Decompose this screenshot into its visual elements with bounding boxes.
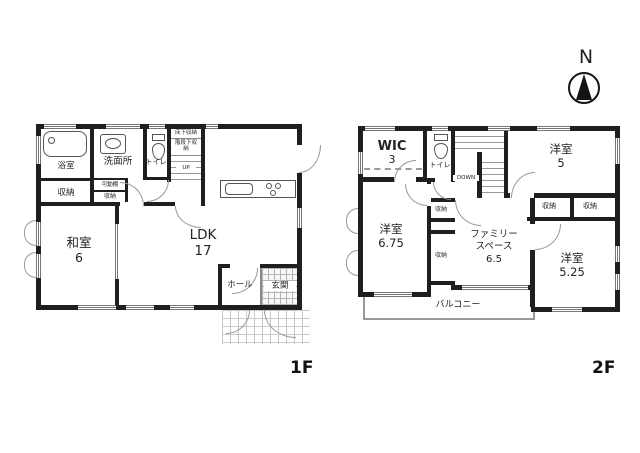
room-size-family-space: 6.5 bbox=[464, 254, 524, 266]
wall bbox=[36, 178, 94, 181]
window bbox=[44, 124, 76, 129]
room-size-bedroom-525: 5.25 bbox=[548, 266, 596, 280]
sliding-door-japanese-room bbox=[115, 224, 119, 279]
room-label-bathroom: 浴室 bbox=[47, 161, 85, 171]
room-label-entrance: 玄関 bbox=[264, 281, 296, 291]
label-stairs-down: DOWN bbox=[453, 175, 479, 181]
compass: N bbox=[560, 46, 604, 110]
toilet-tank-icon bbox=[152, 134, 165, 141]
casement-window-icon bbox=[346, 208, 358, 234]
room-label-bedroom-5: 洋室 bbox=[536, 143, 586, 157]
stove-burner-icon bbox=[266, 183, 272, 189]
room-label-japanese-room: 和室 bbox=[59, 236, 99, 251]
wall bbox=[167, 124, 171, 182]
casement-window-icon bbox=[346, 250, 358, 276]
window bbox=[297, 208, 302, 228]
room-size-wic: 3 bbox=[372, 154, 412, 167]
floorplan-page: { "compass": { "north": "N" }, "captions… bbox=[0, 0, 640, 453]
window bbox=[126, 305, 154, 310]
casement-window-icon bbox=[24, 220, 36, 246]
floor-plan-1f: 浴室 洗面所 トイレ 床下収納 階段下収納 UP 可動棚 収納 収納 和室 6 … bbox=[36, 124, 306, 354]
stove-burner-icon bbox=[275, 183, 281, 189]
casement-window-icon bbox=[24, 252, 36, 278]
window bbox=[432, 126, 448, 131]
wall bbox=[94, 178, 128, 180]
door-arc bbox=[147, 180, 169, 202]
toilet-tank-icon bbox=[434, 134, 448, 141]
washbasin-bowl-icon bbox=[105, 138, 121, 149]
staircase-down-upper bbox=[455, 131, 504, 152]
label-closet: 収納 bbox=[573, 202, 607, 210]
balcony-sliding-door bbox=[462, 285, 528, 290]
kitchen-back-door-arc bbox=[299, 145, 321, 173]
label-closet: 収納 bbox=[50, 188, 82, 198]
room-label-bedroom-525: 洋室 bbox=[548, 252, 596, 266]
label-understairs-storage: 階段下収納 bbox=[175, 140, 197, 153]
window bbox=[374, 292, 412, 297]
room-size-ldk: 17 bbox=[181, 244, 225, 260]
room-label-hall: ホール bbox=[224, 280, 256, 290]
door-arc bbox=[175, 206, 201, 228]
kitchen-sink-icon bbox=[225, 183, 253, 195]
window bbox=[365, 126, 395, 131]
wall bbox=[530, 198, 535, 307]
bathtub-drain-icon bbox=[48, 137, 55, 144]
stair-closet-divider bbox=[171, 138, 201, 139]
window bbox=[358, 152, 363, 174]
label-stairs-up: UP bbox=[176, 165, 196, 171]
room-label-toilet: トイレ bbox=[142, 158, 170, 166]
room-label-toilet: トイレ bbox=[424, 161, 456, 169]
wall bbox=[427, 218, 455, 222]
wall bbox=[423, 126, 427, 182]
door-arc bbox=[511, 172, 535, 198]
window bbox=[170, 305, 194, 310]
label-underfloor-storage: 床下収納 bbox=[172, 130, 200, 136]
window bbox=[552, 307, 582, 312]
window bbox=[206, 124, 218, 129]
floor-caption-1f: 1F bbox=[290, 358, 313, 378]
door-arc bbox=[405, 184, 427, 206]
room-label-bedroom-675: 洋室 bbox=[368, 223, 414, 237]
window bbox=[36, 136, 41, 164]
wall bbox=[427, 230, 455, 234]
wall bbox=[218, 264, 222, 310]
bathtub-icon bbox=[43, 131, 87, 157]
wall bbox=[222, 264, 230, 268]
wall bbox=[451, 126, 455, 182]
window bbox=[537, 126, 570, 131]
window bbox=[488, 126, 510, 131]
label-closet: 収納 bbox=[96, 193, 124, 200]
wall bbox=[201, 124, 205, 206]
window bbox=[615, 246, 620, 262]
room-label-balcony: バルコニー bbox=[413, 300, 503, 311]
window bbox=[149, 124, 165, 129]
door-arc bbox=[455, 200, 481, 226]
window bbox=[78, 305, 116, 310]
room-size-bedroom-675: 6.75 bbox=[368, 237, 414, 251]
toilet-bowl-icon bbox=[434, 143, 448, 159]
room-size-japanese-room: 6 bbox=[59, 251, 99, 266]
compass-north-label: N bbox=[576, 46, 596, 68]
floor-plan-2f: WIC 3 トイレ DOWN 洋室 5 収納 収納 洋室 6.75 収納 収納 … bbox=[358, 126, 628, 326]
door-arc bbox=[535, 224, 561, 250]
wall bbox=[504, 126, 508, 198]
label-closet: 収納 bbox=[532, 202, 566, 210]
wall bbox=[143, 124, 147, 180]
wall bbox=[36, 305, 302, 310]
label-closet: 収納 bbox=[428, 252, 454, 259]
stove-burner-icon bbox=[270, 190, 276, 196]
window bbox=[36, 254, 41, 278]
wall bbox=[260, 264, 298, 268]
window bbox=[36, 222, 41, 246]
room-size-bedroom-5: 5 bbox=[536, 157, 586, 171]
floor-caption-2f: 2F bbox=[592, 358, 615, 378]
wic-hanger-rod bbox=[364, 168, 422, 172]
window bbox=[615, 138, 620, 164]
room-label-family-space-1: ファミリー bbox=[464, 229, 524, 240]
room-label-ldk: LDK bbox=[181, 228, 225, 244]
window bbox=[106, 124, 140, 129]
staircase-down-lower bbox=[482, 157, 504, 198]
label-closet: 収納 bbox=[428, 206, 454, 213]
wall bbox=[358, 177, 427, 182]
room-label-washroom: 洗面所 bbox=[93, 156, 143, 167]
room-label-family-space-2: スペース bbox=[464, 241, 524, 252]
label-movable-shelf: 可動棚 bbox=[96, 182, 124, 188]
entrance-step-edge bbox=[260, 268, 262, 305]
window bbox=[615, 274, 620, 290]
door-opening bbox=[427, 184, 431, 206]
